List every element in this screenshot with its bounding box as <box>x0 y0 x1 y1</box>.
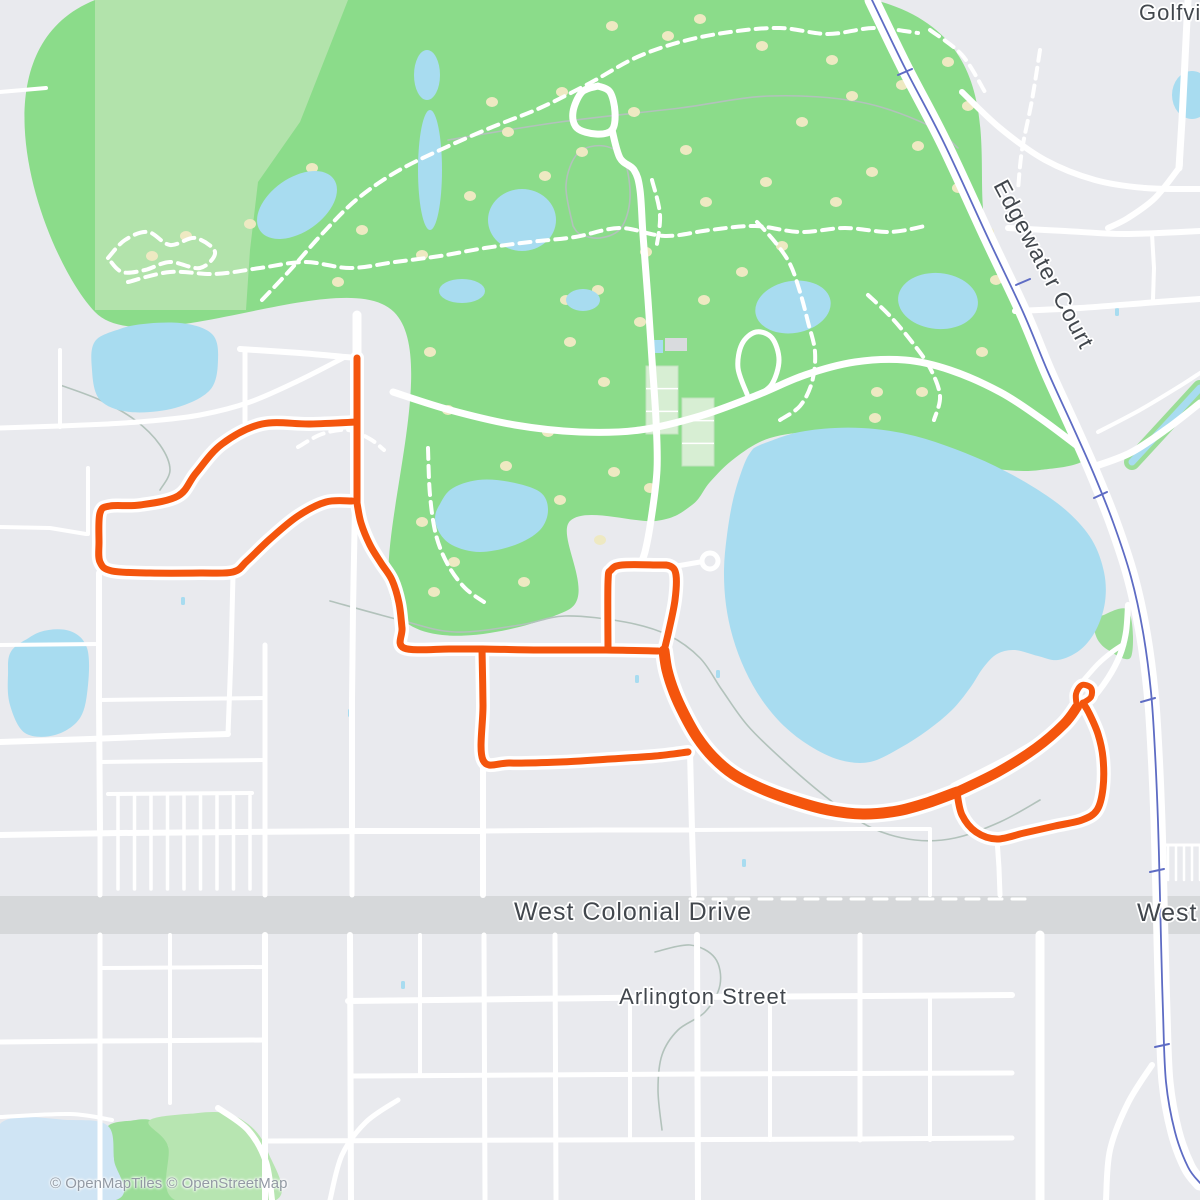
tree-patch <box>416 517 428 527</box>
tree-patch <box>576 147 588 157</box>
tree-patch <box>608 467 620 477</box>
tree-patch <box>700 197 712 207</box>
tree-patch <box>539 171 551 181</box>
building <box>665 338 687 351</box>
street-label-arlington-street: Arlington Street <box>619 984 787 1009</box>
road <box>265 1138 1012 1141</box>
tree-patch <box>736 267 748 277</box>
tree-patch <box>486 97 498 107</box>
tree-patch <box>356 225 368 235</box>
road <box>997 839 1000 895</box>
road <box>100 760 265 762</box>
tree-patch <box>448 557 460 567</box>
road <box>0 1040 265 1042</box>
tree-patch <box>518 577 530 587</box>
street-label-west-colonial-drive: West Colonial Drive <box>514 898 752 926</box>
road <box>1152 234 1154 299</box>
pond <box>566 289 600 311</box>
tree-patch <box>554 495 566 505</box>
road <box>350 935 351 1200</box>
tree-patch <box>826 55 838 65</box>
tree-patch <box>598 377 610 387</box>
road <box>0 644 99 645</box>
tree-patch <box>698 295 710 305</box>
street-label-west-colonial-drive: West Colonial Drive <box>1137 899 1200 927</box>
pond <box>414 50 440 100</box>
tree-patch <box>942 57 954 67</box>
tree-patch <box>332 277 344 287</box>
pond <box>439 279 485 303</box>
tree-patch <box>866 167 878 177</box>
road <box>690 829 930 830</box>
tree-patch <box>606 21 618 31</box>
pond <box>418 110 442 230</box>
tree-patch <box>694 14 706 24</box>
tree-patch <box>634 317 646 327</box>
tree-patch <box>912 141 924 151</box>
tree-patch <box>869 413 881 423</box>
tree-patch <box>760 177 772 187</box>
tree-patch <box>916 387 928 397</box>
tree-patch <box>871 387 883 397</box>
tree-patch <box>146 251 158 261</box>
road <box>697 935 698 1200</box>
road <box>99 573 100 833</box>
tree-patch <box>244 219 256 229</box>
tree-patch <box>428 587 440 597</box>
road <box>484 935 485 1200</box>
road <box>483 830 690 831</box>
tree-patch <box>976 347 988 357</box>
tree-patch <box>628 107 640 117</box>
tree-patch <box>796 117 808 127</box>
tree-patch <box>424 347 436 357</box>
road <box>100 698 265 700</box>
road <box>108 793 252 794</box>
tree-patch <box>662 31 674 41</box>
tree-patch <box>502 127 514 137</box>
tree-patch <box>564 337 576 347</box>
street-label-golfview: Golfview <box>1139 0 1200 25</box>
road <box>350 1073 1012 1076</box>
tree-patch <box>830 197 842 207</box>
road <box>555 935 556 1200</box>
tree-patch <box>680 145 692 155</box>
tree-patch <box>500 461 512 471</box>
map-canvas: Edgewater CourtWest Colonial DriveWest C… <box>0 0 1200 1200</box>
tree-patch <box>464 191 476 201</box>
map-view[interactable]: Edgewater CourtWest Colonial DriveWest C… <box>0 0 1200 1200</box>
tree-patch <box>594 535 606 545</box>
tree-patch <box>756 41 768 51</box>
road <box>352 505 355 831</box>
pond <box>0 1117 124 1200</box>
tree-patch <box>846 91 858 101</box>
road <box>690 752 694 895</box>
road <box>100 967 265 968</box>
